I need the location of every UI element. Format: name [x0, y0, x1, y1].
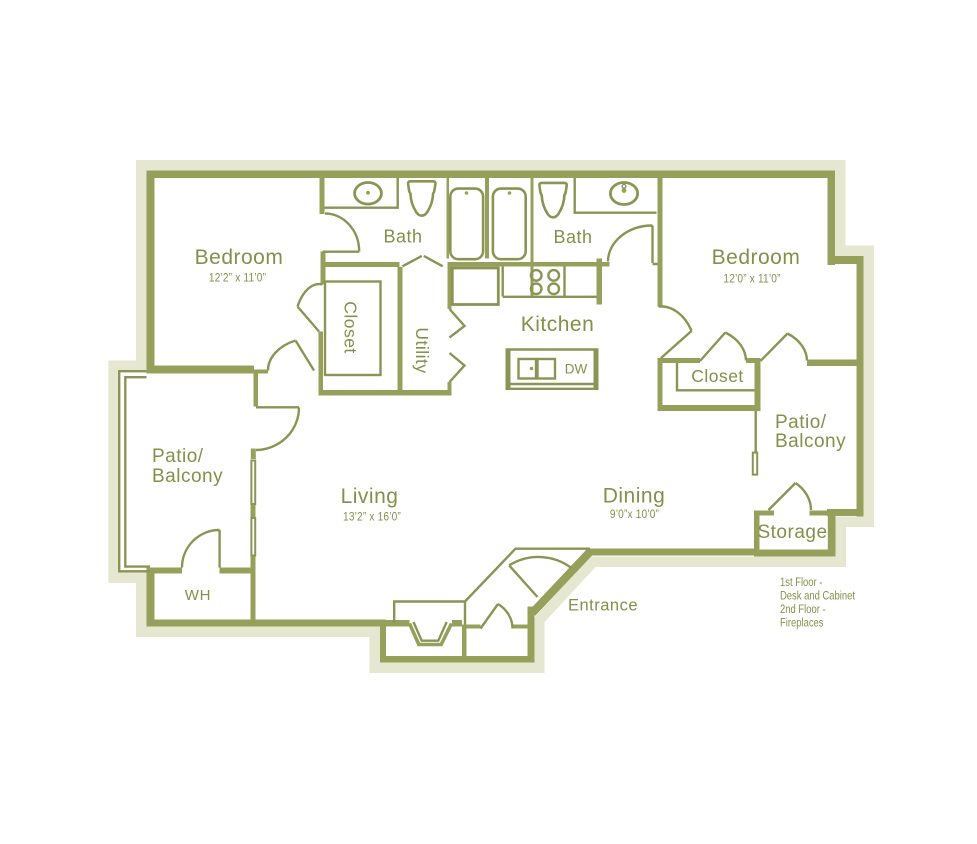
- svg-text:Bedroom: Bedroom: [712, 246, 801, 269]
- svg-text:Bedroom: Bedroom: [195, 246, 284, 269]
- svg-text:Desk and Cabinet: Desk and Cabinet: [780, 590, 855, 603]
- svg-text:Dining: Dining: [603, 485, 666, 508]
- svg-text:Bath: Bath: [553, 227, 592, 247]
- svg-text:WH: WH: [185, 587, 212, 604]
- svg-text:Entrance: Entrance: [568, 597, 638, 615]
- svg-text:Closet: Closet: [341, 301, 361, 354]
- svg-text:Kitchen: Kitchen: [521, 313, 595, 336]
- svg-text:Patio/: Patio/: [152, 446, 204, 467]
- svg-text:Bath: Bath: [383, 227, 422, 247]
- svg-text:13’2” x 16’0”: 13’2” x 16’0”: [343, 511, 401, 524]
- svg-text:Utility: Utility: [412, 327, 432, 373]
- svg-text:Living: Living: [341, 485, 399, 508]
- svg-text:12’0” x 11’0”: 12’0” x 11’0”: [723, 273, 780, 286]
- svg-text:Fireplaces: Fireplaces: [780, 617, 823, 630]
- svg-text:2nd Floor -: 2nd Floor -: [780, 603, 826, 616]
- svg-text:Balcony: Balcony: [775, 431, 846, 452]
- svg-text:12’2” x 11’0”: 12’2” x 11’0”: [209, 272, 266, 285]
- svg-text:Patio/: Patio/: [775, 412, 827, 433]
- svg-text:Storage: Storage: [757, 522, 827, 543]
- svg-text:Balcony: Balcony: [152, 466, 223, 487]
- svg-text:Closet: Closet: [691, 366, 744, 386]
- svg-text:9’0”x 10’0”: 9’0”x 10’0”: [610, 508, 659, 521]
- svg-text:1st Floor -: 1st Floor -: [780, 576, 823, 589]
- svg-text:DW: DW: [565, 362, 588, 377]
